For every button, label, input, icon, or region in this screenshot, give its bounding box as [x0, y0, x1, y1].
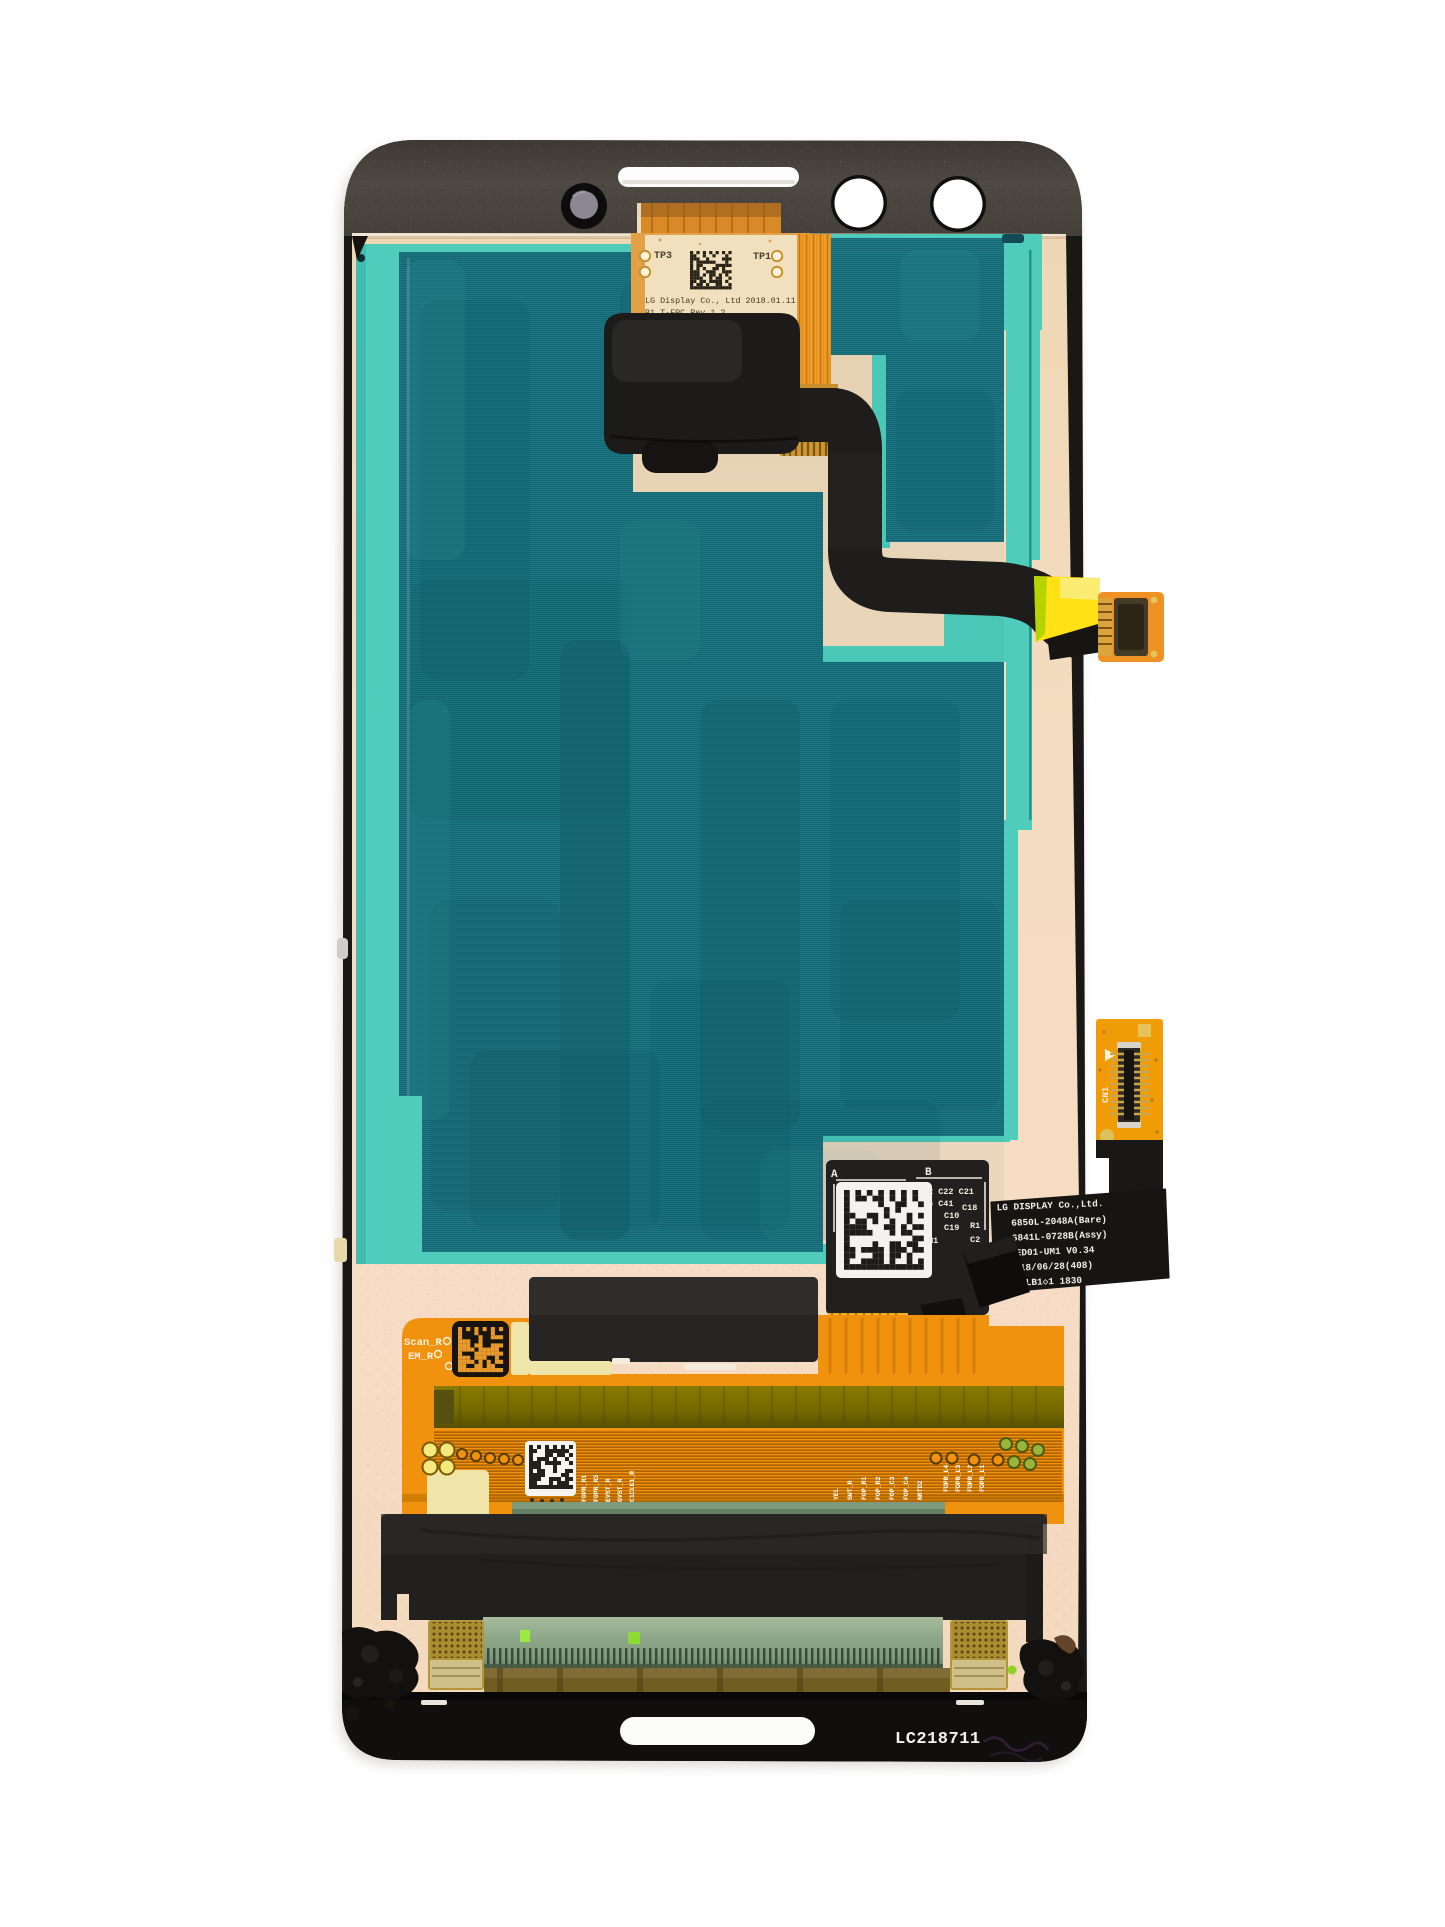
svg-text:GVST_R: GVST_R: [617, 1478, 624, 1502]
svg-text:TP1: TP1: [753, 252, 771, 263]
svg-text:M1: M1: [928, 1236, 938, 1246]
svg-text:FOP_C4: FOP_C4: [903, 1476, 910, 1500]
svg-text:FOP_R2: FOP_R2: [875, 1476, 882, 1500]
svg-text:EM_R: EM_R: [408, 1351, 434, 1363]
svg-text:CN1: CN1: [1101, 1086, 1111, 1103]
svg-text:FOPR_R3: FOPR_R3: [593, 1475, 600, 1502]
svg-text:FOPR_L2: FOPR_L2: [967, 1465, 974, 1492]
svg-text:FOPR_R1: FOPR_R1: [581, 1475, 588, 1502]
svg-text:R1: R1: [970, 1221, 980, 1231]
svg-text:C10: C10: [944, 1211, 959, 1221]
svg-text:NRTD2: NRTD2: [917, 1480, 924, 1500]
svg-text:C19: C19: [944, 1223, 959, 1233]
svg-text:C18: C18: [962, 1203, 977, 1213]
svg-text:FOP_C3: FOP_C3: [889, 1476, 896, 1500]
svg-text:SWT_R: SWT_R: [847, 1480, 854, 1500]
svg-text:Scan_R: Scan_R: [404, 1337, 443, 1349]
svg-text:LG Display Co., Ltd 2018.01.11: LG Display Co., Ltd 2018.01.11: [645, 296, 796, 306]
svg-text:FOPR_L1: FOPR_L1: [979, 1465, 986, 1492]
svg-text:2 C22 C21: 2 C22 C21: [928, 1187, 974, 1197]
svg-text:C1CLK1_R: C1CLK1_R: [629, 1471, 636, 1502]
svg-text:FOP_R1: FOP_R1: [861, 1476, 868, 1500]
svg-text:EVST_R: EVST_R: [605, 1478, 612, 1502]
svg-text:LC218711: LC218711: [895, 1730, 981, 1749]
svg-text:FOPR_L3: FOPR_L3: [955, 1465, 962, 1492]
svg-text:FOPR_L4: FOPR_L4: [943, 1465, 950, 1492]
svg-text:YEL: YEL: [833, 1488, 840, 1500]
svg-text:TP3: TP3: [654, 251, 672, 262]
svg-text:6 C41: 6 C41: [928, 1199, 954, 1209]
svg-text:C2: C2: [970, 1235, 980, 1245]
